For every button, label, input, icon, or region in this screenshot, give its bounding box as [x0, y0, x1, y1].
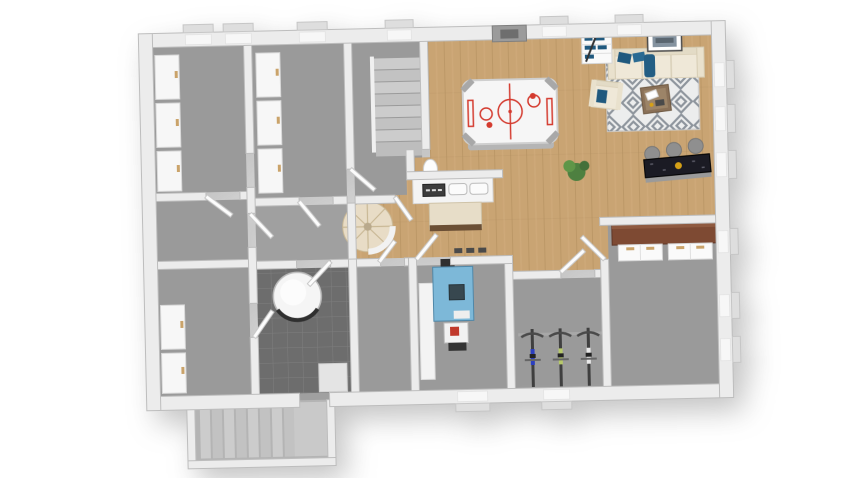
bike-pedals — [581, 358, 597, 360]
wall-interior — [248, 247, 257, 303]
window — [715, 107, 726, 131]
window-sill — [297, 22, 327, 31]
kitchenette-appliance — [470, 183, 488, 194]
wall-interior — [347, 203, 356, 259]
wall-interior — [256, 260, 296, 269]
stairwell-tread — [248, 403, 259, 457]
boiler-room-shelf — [419, 283, 435, 379]
kitchenette-appliance — [449, 183, 467, 194]
stair-tread — [375, 105, 421, 117]
wall-interior — [406, 170, 502, 180]
armchair — [589, 80, 624, 111]
stairwell-tread — [212, 404, 223, 458]
wall-exterior-bottom — [147, 393, 300, 410]
stair-tread — [375, 93, 421, 105]
window — [543, 389, 569, 400]
wall-interior — [255, 197, 299, 206]
window-sill — [456, 403, 490, 412]
boiler-panel — [454, 310, 470, 318]
floor-small-room — [357, 266, 412, 392]
window-sill — [730, 228, 739, 254]
window — [185, 34, 211, 45]
window — [720, 339, 730, 361]
window-sill — [223, 23, 253, 32]
window — [542, 26, 566, 37]
floor-storage-3 — [156, 199, 248, 261]
wall-interior — [333, 196, 347, 204]
wall-interior — [355, 195, 395, 204]
wall-interior — [356, 258, 380, 267]
window — [716, 153, 727, 177]
air-hockey-table — [462, 78, 558, 150]
boiler-pump-base — [448, 343, 466, 351]
wall-interior — [240, 191, 247, 199]
window — [719, 295, 729, 317]
stairwell-tread — [272, 403, 283, 457]
exterior-stairwell — [187, 400, 336, 469]
utility-floor-mat — [319, 363, 348, 392]
wall-interior — [450, 255, 512, 264]
counter-with-cabinets — [612, 223, 725, 262]
stair-tread — [375, 117, 421, 129]
wall-interior — [595, 269, 601, 277]
stairwell-tread — [260, 403, 271, 457]
window — [387, 30, 411, 41]
wall-interior — [330, 259, 348, 267]
window-sill — [732, 336, 741, 362]
wall-interior — [250, 337, 259, 394]
stairwell-tread — [236, 404, 247, 458]
window-sill — [183, 24, 213, 33]
wall-interior — [157, 259, 248, 269]
bike-saddle — [530, 354, 536, 358]
floor-plan-canvas: 3D rendered basement floor plan, top-dow… — [0, 0, 850, 478]
stairwell-wall — [187, 403, 196, 469]
floor-plan-stage: 3D rendered basement floor plan, top-dow… — [0, 0, 850, 478]
window — [718, 231, 728, 253]
window-sill — [731, 292, 740, 318]
window — [299, 32, 325, 43]
stairwell-tread — [200, 404, 211, 458]
stair-landing — [376, 141, 422, 156]
window — [225, 33, 251, 44]
sofa-armrest — [697, 47, 705, 77]
stairwell-tread — [284, 402, 295, 456]
wall-interior — [156, 192, 206, 201]
hatch-opening — [500, 29, 518, 38]
wall-interior — [247, 187, 256, 213]
window-sill — [727, 104, 736, 132]
coffee-table-tray — [655, 99, 665, 106]
stairwell-landing — [294, 402, 328, 457]
building — [138, 12, 743, 469]
bike-saddle — [586, 353, 592, 357]
bike-pedals — [553, 358, 569, 360]
boiler-pump-valve — [450, 327, 459, 336]
window — [457, 391, 487, 402]
wall-vents — [454, 250, 486, 251]
bike-pedals — [525, 359, 541, 361]
wall-interior — [513, 270, 561, 279]
stair-tread — [376, 129, 422, 141]
boiler-port — [449, 285, 464, 300]
wall-art-image-detail — [656, 38, 674, 43]
plan-tilt-wrapper: 3D rendered basement floor plan, top-dow… — [0, 0, 850, 478]
bike-saddle — [558, 353, 564, 357]
window-sill — [726, 60, 735, 88]
window-sill — [385, 20, 413, 29]
stair-tread — [374, 57, 420, 69]
stair-tread — [374, 81, 420, 93]
window — [617, 24, 641, 35]
bookshelf — [581, 35, 612, 64]
window — [714, 63, 725, 87]
stairwell-wall — [327, 400, 336, 466]
window-sill — [540, 16, 568, 25]
window-sill — [542, 401, 572, 410]
wall-hatch — [492, 25, 526, 42]
stairwell-tread — [224, 404, 235, 458]
armchair-pillow — [596, 89, 607, 103]
window-sill — [728, 150, 737, 178]
sofa-throw — [644, 54, 656, 77]
side-table-rim — [430, 224, 482, 231]
coffee-table — [640, 84, 671, 113]
stair-tread — [374, 69, 420, 81]
window-sill — [615, 14, 643, 23]
